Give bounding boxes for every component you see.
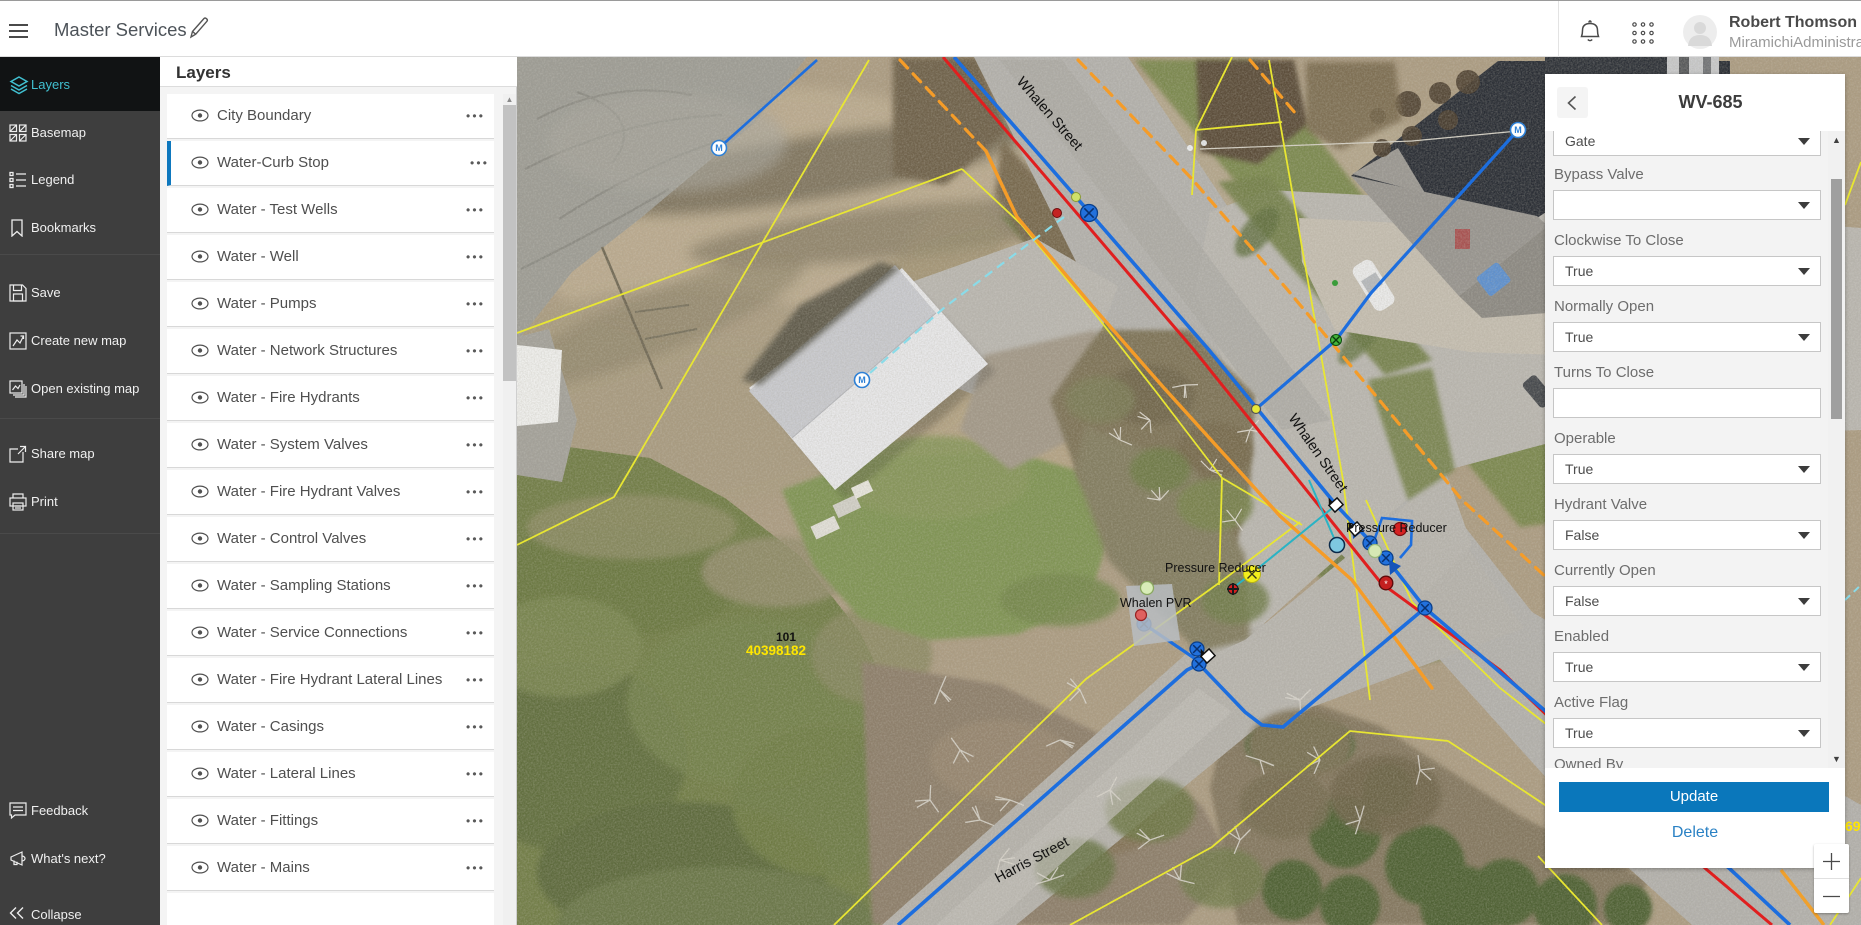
svg-text:M: M (858, 375, 866, 385)
svg-text:101: 101 (776, 630, 796, 644)
svg-text:69: 69 (1845, 818, 1861, 834)
svg-text:Whalen PVR: Whalen PVR (1120, 596, 1192, 610)
svg-text:M: M (715, 143, 723, 153)
svg-text:Pressure Reducer: Pressure Reducer (1165, 561, 1266, 575)
svg-text:M: M (1514, 125, 1522, 135)
svg-text:40398182: 40398182 (746, 643, 806, 658)
svg-text:Pressure Reducer: Pressure Reducer (1346, 521, 1447, 535)
svg-text:*: * (1384, 579, 1388, 589)
